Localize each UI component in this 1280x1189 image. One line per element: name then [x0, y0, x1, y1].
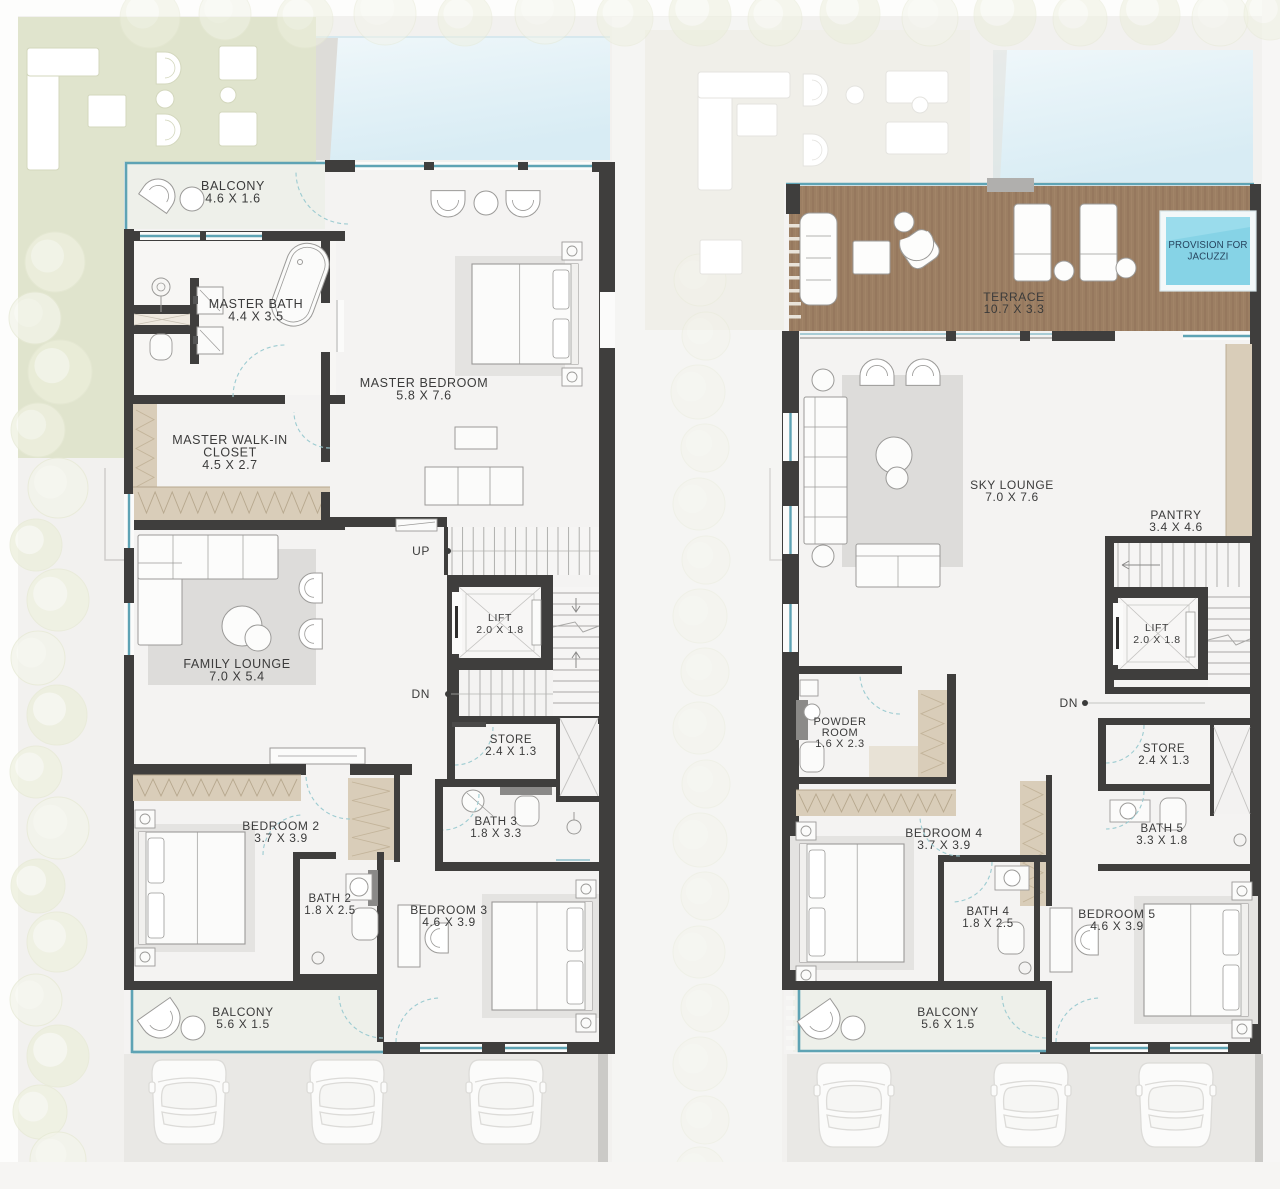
- svg-text:1.8 X 2.5: 1.8 X 2.5: [304, 905, 355, 917]
- svg-text:UP: UP: [412, 544, 430, 558]
- svg-text:3.7 X 3.9: 3.7 X 3.9: [917, 838, 970, 852]
- svg-text:2.0 X 1.8: 2.0 X 1.8: [476, 624, 523, 636]
- svg-text:BATH 4: BATH 4: [966, 906, 1009, 918]
- svg-text:3.4 X 4.6: 3.4 X 4.6: [1149, 520, 1202, 534]
- svg-text:1.8 X 3.3: 1.8 X 3.3: [470, 828, 521, 840]
- svg-text:4.5 X 2.7: 4.5 X 2.7: [202, 458, 257, 472]
- svg-text:BATH 3: BATH 3: [474, 816, 517, 828]
- svg-text:DN: DN: [1059, 696, 1078, 710]
- svg-text:4.6 X 3.9: 4.6 X 3.9: [1090, 919, 1143, 933]
- svg-text:LIFT: LIFT: [488, 612, 512, 624]
- svg-text:BATH 2: BATH 2: [308, 893, 351, 905]
- svg-text:3.3 X 1.8: 3.3 X 1.8: [1136, 835, 1187, 847]
- svg-text:STORE: STORE: [490, 734, 532, 746]
- svg-text:PROVISION FOR: PROVISION FOR: [1168, 240, 1247, 251]
- svg-text:10.7 X 3.3: 10.7 X 3.3: [984, 302, 1045, 316]
- svg-text:5.6 X 1.5: 5.6 X 1.5: [921, 1017, 974, 1031]
- svg-text:2.4 X 1.3: 2.4 X 1.3: [1138, 755, 1189, 767]
- svg-text:7.0 X 5.4: 7.0 X 5.4: [209, 670, 264, 684]
- svg-text:3.7 X 3.9: 3.7 X 3.9: [254, 831, 307, 845]
- svg-text:2.0 X 1.8: 2.0 X 1.8: [1133, 634, 1180, 646]
- svg-text:BATH 5: BATH 5: [1140, 823, 1183, 835]
- svg-text:4.4 X 3.5: 4.4 X 3.5: [228, 310, 283, 324]
- svg-text:4.6 X 1.6: 4.6 X 1.6: [205, 192, 260, 206]
- svg-text:1.6 X 2.3: 1.6 X 2.3: [815, 738, 864, 750]
- svg-text:JACUZZI: JACUZZI: [1188, 252, 1229, 263]
- svg-text:2.4 X 1.3: 2.4 X 1.3: [485, 746, 536, 758]
- svg-text:LIFT: LIFT: [1145, 622, 1169, 634]
- svg-text:DN: DN: [411, 687, 430, 701]
- svg-text:4.6 X 3.9: 4.6 X 3.9: [422, 915, 475, 929]
- svg-text:5.6 X 1.5: 5.6 X 1.5: [216, 1017, 269, 1031]
- svg-text:STORE: STORE: [1143, 743, 1185, 755]
- svg-text:5.8 X 7.6: 5.8 X 7.6: [396, 389, 451, 403]
- svg-text:7.0 X 7.6: 7.0 X 7.6: [985, 490, 1038, 504]
- svg-text:1.8 X 2.5: 1.8 X 2.5: [962, 918, 1013, 930]
